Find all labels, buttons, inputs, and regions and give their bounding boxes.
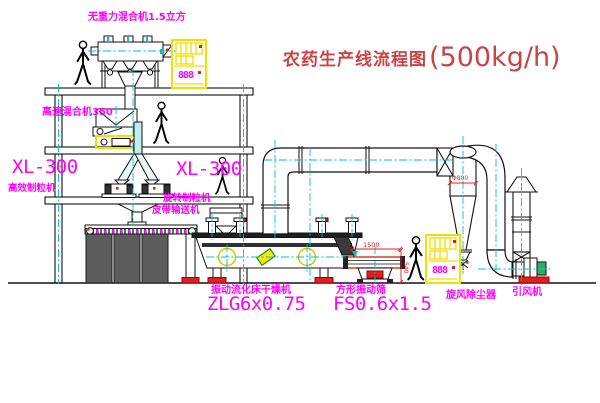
label-granulator-right-name: 旋转制粒机 <box>163 194 211 204</box>
label-granulator-left-model: XL-300 <box>12 158 78 177</box>
label-high-speed-mixer: 高速混合机350 <box>42 108 113 118</box>
person-figure-4 <box>408 237 423 280</box>
belt-conveyor <box>85 225 199 283</box>
label-gravity-mixer: 无重力混合机1.5立方 <box>88 13 186 23</box>
dim-sieve-height: 540 <box>402 262 409 274</box>
label-sieve-model: FS0.6x1.5 <box>333 295 431 314</box>
fan-base <box>519 277 549 283</box>
label-fan: 引风机 <box>512 288 542 298</box>
vibrating-sieve <box>343 256 405 283</box>
label-cyclone: 旋风除尘器 <box>446 291 496 301</box>
dim-sieve-width: 1500 <box>363 241 380 249</box>
label-belt-conveyor: 皮带输送机 <box>152 206 200 216</box>
label-dryer-model: ZLG6x0.75 <box>207 295 305 314</box>
person-figure-1 <box>75 41 90 84</box>
cabinet2-display: 888 <box>432 265 448 276</box>
indicator-dot <box>453 240 456 243</box>
label-granulator-right-model: XL-300 <box>176 160 242 179</box>
fan-motor <box>537 262 546 275</box>
granulator-left <box>102 184 136 198</box>
cabinet1-display: 888 <box>178 70 194 81</box>
title-capacity: (500kg/h) <box>429 42 561 73</box>
gravity-mixer <box>91 36 172 110</box>
indicator-dot <box>198 71 201 74</box>
dim-cyclone-dia: Φ800 <box>452 175 468 182</box>
induced-draft-fan <box>512 258 549 283</box>
label-granulator-left-name: 高效制粒机 <box>8 184 56 194</box>
y-duct <box>115 154 159 184</box>
page-title: 农药生产线流程图 (500kg/h) <box>283 42 561 73</box>
diagram-canvas: 888 <box>0 0 600 403</box>
indicator-dot <box>199 45 202 48</box>
control-cabinet-2: 888 <box>426 235 460 283</box>
title-chinese: 农药生产线流程图 <box>283 45 427 73</box>
person-figure-2 <box>154 102 168 143</box>
indicator-dot <box>452 266 455 269</box>
control-cabinet-1: 888 <box>172 40 206 88</box>
